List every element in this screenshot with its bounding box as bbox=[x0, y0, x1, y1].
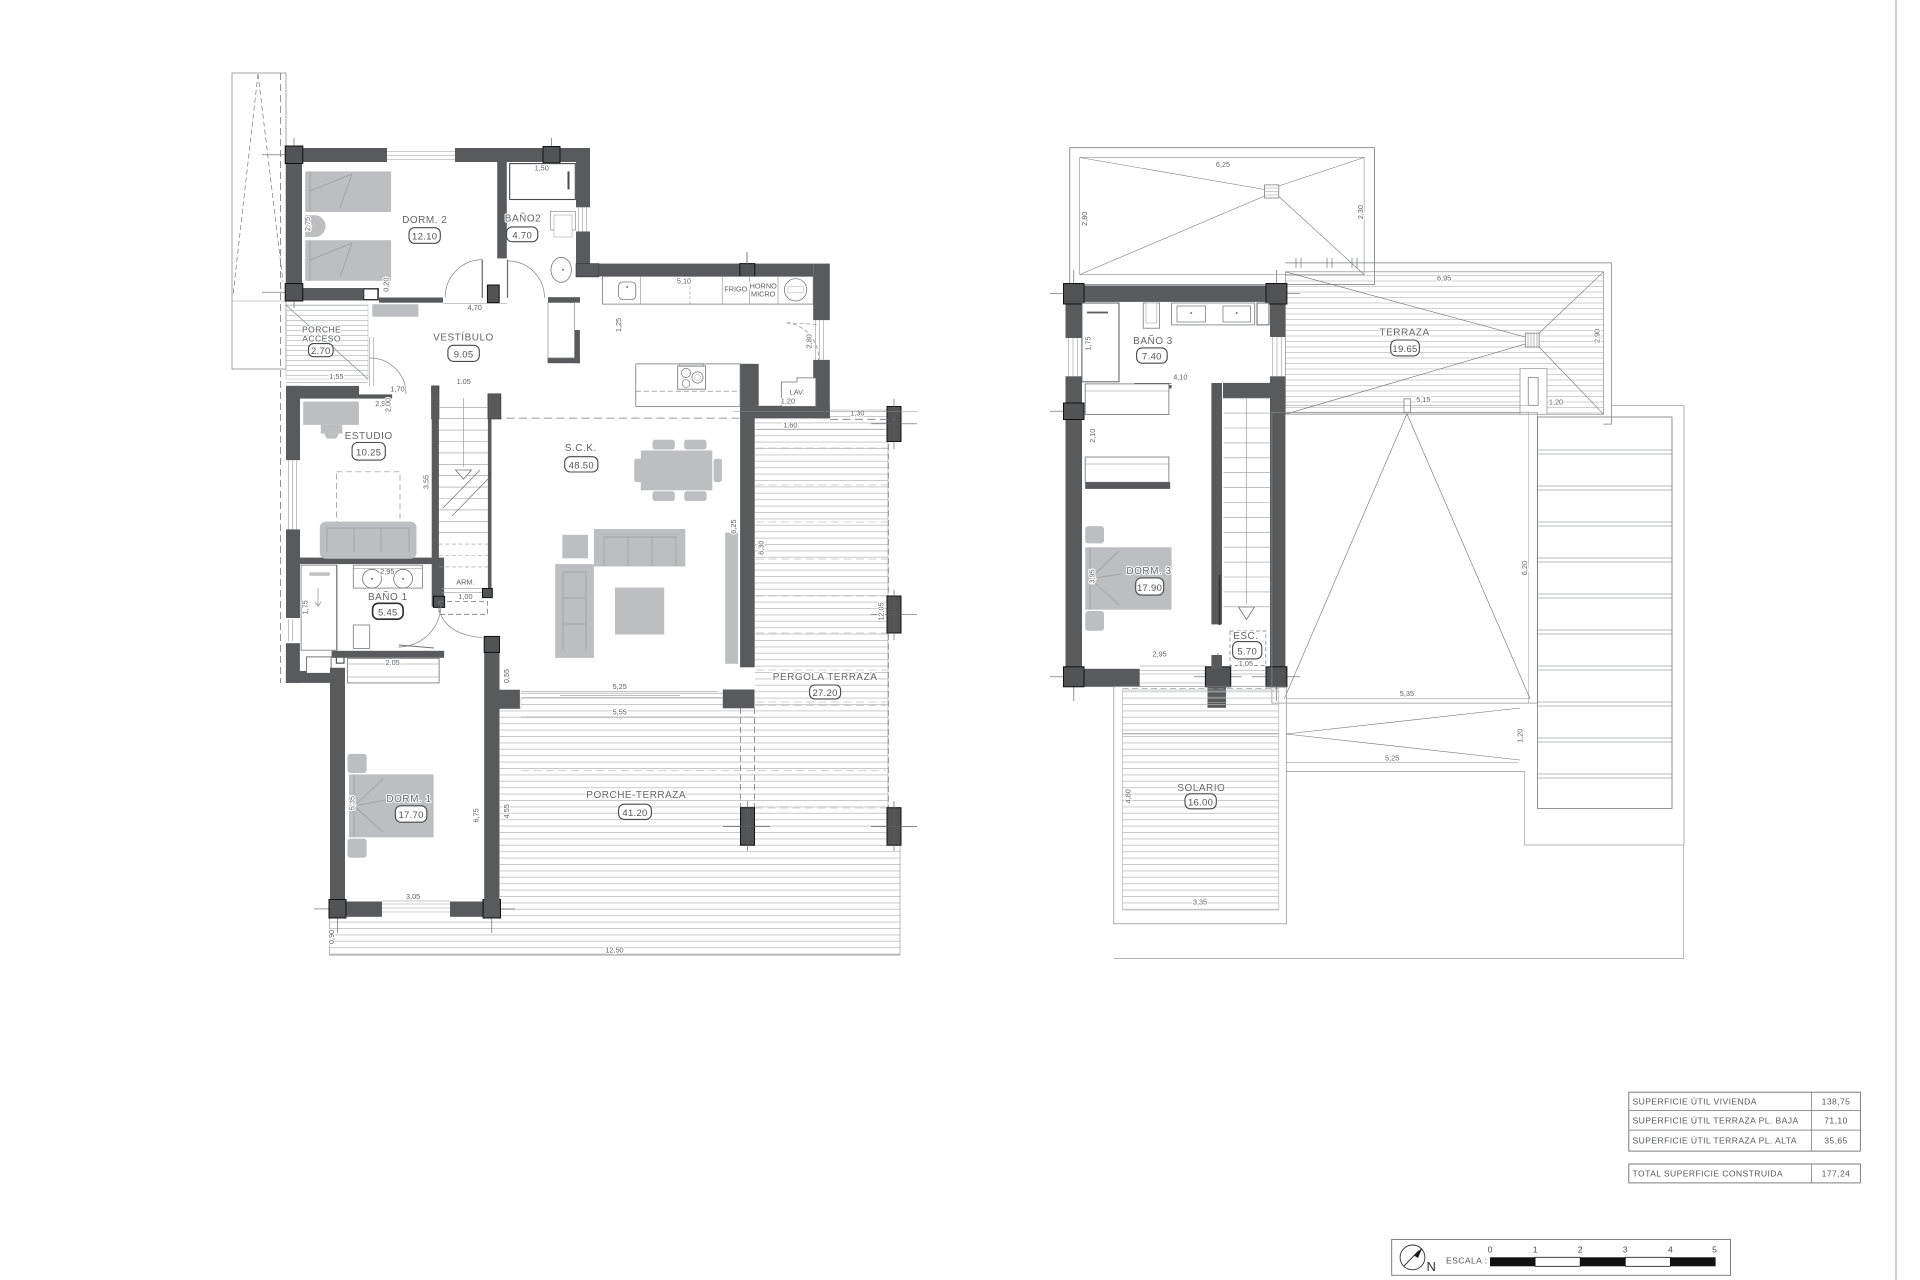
svg-text:ESC.: ESC. bbox=[1233, 631, 1258, 642]
svg-text:12,50: 12,50 bbox=[605, 946, 623, 955]
svg-text:0,90: 0,90 bbox=[327, 930, 336, 944]
svg-text:6,30: 6,30 bbox=[756, 541, 765, 555]
svg-text:2,75: 2,75 bbox=[303, 217, 312, 231]
svg-text:4,70: 4,70 bbox=[468, 303, 482, 312]
svg-text:4,10: 4,10 bbox=[1173, 372, 1187, 381]
svg-text:1.05: 1.05 bbox=[457, 377, 471, 386]
svg-text:35,65: 35,65 bbox=[1824, 1136, 1848, 1146]
svg-text:19.65: 19.65 bbox=[1392, 344, 1417, 355]
svg-text:1,60: 1,60 bbox=[783, 420, 797, 429]
svg-text:5,35: 5,35 bbox=[1400, 689, 1414, 698]
svg-text:N: N bbox=[1427, 1259, 1436, 1274]
svg-text:1,05: 1,05 bbox=[1239, 659, 1253, 668]
svg-text:1,75: 1,75 bbox=[1083, 336, 1092, 350]
svg-text:ARM.: ARM. bbox=[456, 578, 474, 587]
svg-text:LAV.: LAV. bbox=[790, 387, 805, 396]
svg-text:VESTÍBULO: VESTÍBULO bbox=[433, 331, 494, 344]
svg-text:4.70: 4.70 bbox=[512, 230, 532, 241]
svg-text:FRIGO: FRIGO bbox=[724, 284, 747, 293]
svg-text:BAÑO 1: BAÑO 1 bbox=[368, 590, 408, 603]
svg-text:SUPERFICIE ÚTIL TERRAZA PL. AL: SUPERFICIE ÚTIL TERRAZA PL. ALTA bbox=[1633, 1136, 1797, 1146]
svg-text:2,80: 2,80 bbox=[805, 334, 814, 348]
svg-text:16.00: 16.00 bbox=[1188, 797, 1213, 808]
svg-text:17.70: 17.70 bbox=[398, 810, 423, 821]
svg-text:SUPERFICIE ÚTIL VIVIENDA: SUPERFICIE ÚTIL VIVIENDA bbox=[1633, 1097, 1757, 1107]
svg-text:ACCESO: ACCESO bbox=[302, 334, 341, 344]
svg-text:2: 2 bbox=[1578, 1245, 1583, 1255]
svg-text:BAÑO 3: BAÑO 3 bbox=[1133, 334, 1173, 347]
svg-text:71,10: 71,10 bbox=[1824, 1116, 1848, 1126]
svg-text:1: 1 bbox=[1533, 1245, 1538, 1255]
svg-text:6,95: 6,95 bbox=[1437, 274, 1451, 283]
svg-text:0,55: 0,55 bbox=[502, 669, 511, 683]
svg-text:0,20: 0,20 bbox=[382, 278, 391, 292]
svg-text:1,75: 1,75 bbox=[301, 600, 310, 614]
svg-text:5.45: 5.45 bbox=[378, 607, 398, 618]
svg-text:1,20: 1,20 bbox=[1549, 397, 1563, 406]
svg-text:9.05: 9.05 bbox=[454, 350, 474, 361]
svg-text:TERRAZA: TERRAZA bbox=[1380, 327, 1430, 338]
svg-text:ESCALA :: ESCALA : bbox=[1446, 1256, 1487, 1266]
svg-text:BAÑO2: BAÑO2 bbox=[505, 212, 541, 225]
svg-text:4,80: 4,80 bbox=[1124, 789, 1133, 803]
svg-text:5,25: 5,25 bbox=[1385, 753, 1399, 762]
svg-text:5,35: 5,35 bbox=[348, 796, 357, 810]
svg-text:1,20: 1,20 bbox=[1516, 729, 1525, 743]
svg-text:7.40: 7.40 bbox=[1142, 352, 1162, 363]
svg-text:5.70: 5.70 bbox=[1237, 647, 1257, 658]
svg-text:SUPERFICIE ÚTIL TERRAZA PL. BA: SUPERFICIE ÚTIL TERRAZA PL. BAJA bbox=[1633, 1116, 1799, 1126]
svg-text:2,10: 2,10 bbox=[1088, 429, 1097, 443]
svg-text:1,20: 1,20 bbox=[781, 396, 795, 405]
svg-text:1,00: 1,00 bbox=[458, 592, 472, 601]
svg-text:3,95: 3,95 bbox=[1087, 569, 1096, 583]
svg-text:4: 4 bbox=[1668, 1245, 1673, 1255]
svg-text:SOLARIO: SOLARIO bbox=[1177, 783, 1225, 794]
svg-text:4,55: 4,55 bbox=[502, 804, 511, 818]
svg-text:5,10: 5,10 bbox=[677, 277, 691, 286]
svg-text:3,05: 3,05 bbox=[406, 892, 420, 901]
svg-text:5,15: 5,15 bbox=[1416, 395, 1430, 404]
svg-text:2,80: 2,80 bbox=[1080, 212, 1089, 226]
svg-text:1,50: 1,50 bbox=[535, 163, 549, 172]
svg-text:5: 5 bbox=[1712, 1245, 1717, 1255]
svg-text:S.C.K.: S.C.K. bbox=[565, 443, 597, 454]
svg-text:TOTAL SUPERFICIE CONSTRUIDA: TOTAL SUPERFICIE CONSTRUIDA bbox=[1633, 1169, 1784, 1179]
svg-text:5,25: 5,25 bbox=[613, 682, 627, 691]
svg-text:48.50: 48.50 bbox=[569, 461, 594, 472]
svg-text:PORCHE-TERRAZA: PORCHE-TERRAZA bbox=[586, 790, 686, 801]
svg-text:17.90: 17.90 bbox=[1137, 583, 1162, 594]
svg-text:6,25: 6,25 bbox=[1216, 160, 1230, 169]
svg-text:6,25: 6,25 bbox=[729, 519, 738, 533]
svg-text:3,35: 3,35 bbox=[1193, 897, 1207, 906]
svg-text:DORM. 2: DORM. 2 bbox=[402, 215, 447, 226]
svg-text:177,24: 177,24 bbox=[1822, 1169, 1851, 1179]
svg-text:ESTUDIO: ESTUDIO bbox=[345, 431, 393, 442]
svg-text:41.20: 41.20 bbox=[622, 808, 647, 819]
svg-text:DORM. 1: DORM. 1 bbox=[386, 794, 431, 805]
svg-text:12,05: 12,05 bbox=[877, 602, 886, 620]
svg-text:3: 3 bbox=[1623, 1245, 1628, 1255]
svg-text:12.10: 12.10 bbox=[412, 231, 437, 242]
svg-text:2,30: 2,30 bbox=[1356, 205, 1365, 219]
svg-text:10.25: 10.25 bbox=[356, 448, 381, 459]
svg-text:2,95: 2,95 bbox=[1152, 650, 1166, 659]
svg-text:1,30: 1,30 bbox=[850, 409, 864, 418]
svg-text:6,20: 6,20 bbox=[1520, 561, 1529, 575]
svg-text:PERGOLA TERRAZA: PERGOLA TERRAZA bbox=[773, 672, 878, 683]
svg-text:6,75: 6,75 bbox=[472, 808, 481, 822]
svg-text:1,25: 1,25 bbox=[614, 318, 623, 332]
svg-text:MICRO: MICRO bbox=[751, 289, 776, 298]
svg-text:1,70: 1,70 bbox=[390, 385, 404, 394]
svg-text:27.20: 27.20 bbox=[812, 688, 837, 699]
svg-text:1,55: 1,55 bbox=[329, 372, 343, 381]
svg-text:5,55: 5,55 bbox=[613, 708, 627, 717]
svg-text:3,55: 3,55 bbox=[421, 475, 430, 489]
svg-text:138,75: 138,75 bbox=[1822, 1097, 1851, 1107]
svg-text:2.05: 2.05 bbox=[385, 658, 399, 667]
svg-text:0: 0 bbox=[1488, 1245, 1493, 1255]
svg-text:2,90: 2,90 bbox=[1593, 329, 1602, 343]
svg-text:2,00: 2,00 bbox=[384, 398, 393, 412]
svg-text:2.70: 2.70 bbox=[311, 346, 331, 357]
svg-text:DORM. 3: DORM. 3 bbox=[1126, 566, 1171, 577]
